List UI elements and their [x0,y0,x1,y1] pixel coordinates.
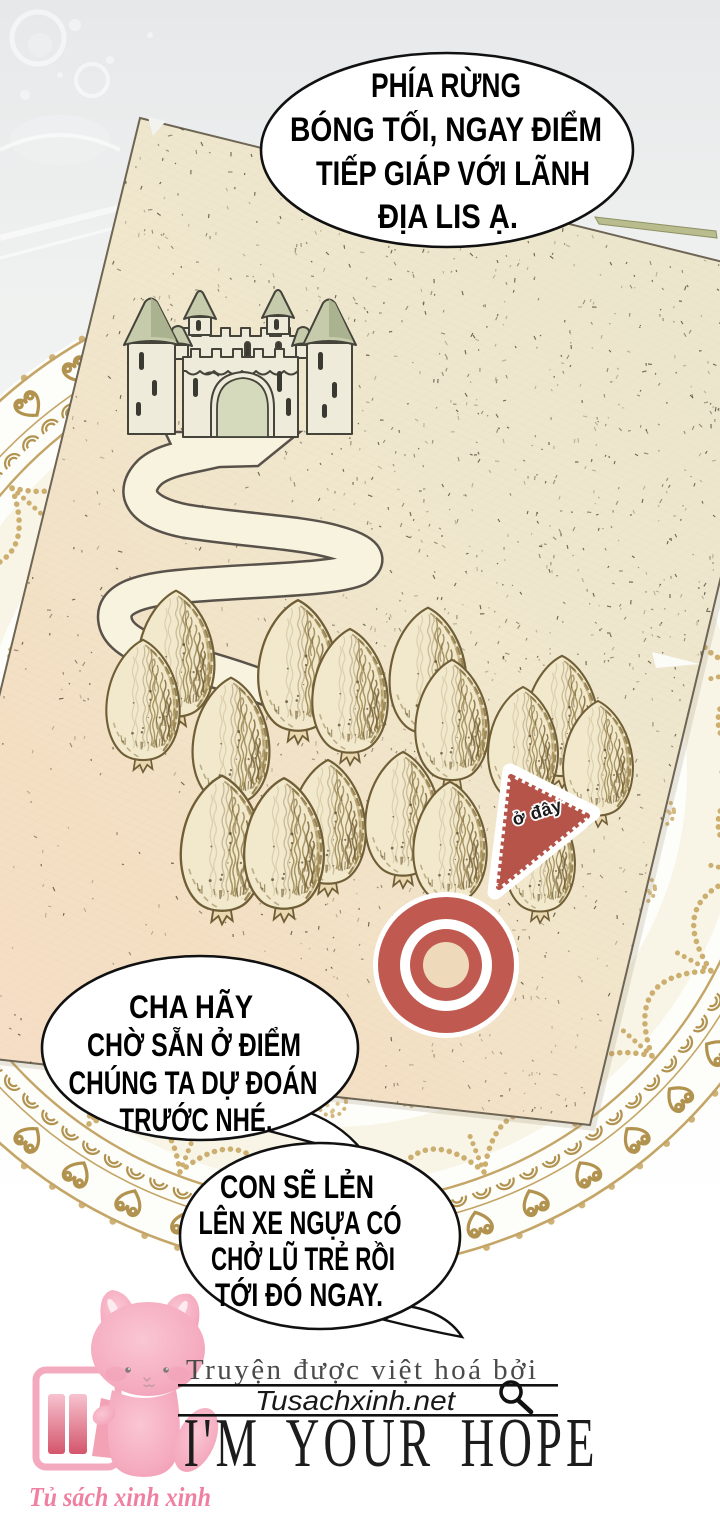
svg-text:TỚI ĐÓ NGAY.: TỚI ĐÓ NGAY. [215,1277,383,1313]
svg-text:LÊN XE NGỰA CÓ: LÊN XE NGỰA CÓ [199,1205,402,1241]
svg-text:BÓNG TỐI, NGAY ĐIỂM: BÓNG TỐI, NGAY ĐIỂM [290,110,602,149]
svg-text:Tủ sách xinh xinh: Tủ sách xinh xinh [29,1482,211,1512]
svg-text:CHỞ LŨ TRẺ RỒI: CHỞ LŨ TRẺ RỒI [211,1241,395,1277]
svg-text:PHÍA RỪNG: PHÍA RỪNG [371,67,521,105]
svg-text:CHỜ SẴN Ở ĐIỂM: CHỜ SẴN Ở ĐIỂM [87,1027,301,1063]
svg-text:CHA HÃY: CHA HÃY [129,989,253,1025]
svg-text:CHÚNG TA DỰ ĐOÁN: CHÚNG TA DỰ ĐOÁN [69,1065,318,1101]
svg-text:TIẾP GIÁP VỚI LÃNH: TIẾP GIÁP VỚI LÃNH [316,155,590,193]
svg-text:ĐỊA LIS Ạ.: ĐỊA LIS Ạ. [378,198,518,236]
svg-text:Truyện được việt hoá bởi: Truyện được việt hoá bởi [186,1354,538,1386]
svg-text:CON SẼ LẺN: CON SẼ LẺN [220,1169,374,1205]
svg-text:I'M YOUR HOPE: I'M YOUR HOPE [184,1405,599,1482]
svg-text:TRƯỚC NHÉ.: TRƯỚC NHÉ. [120,1102,273,1138]
